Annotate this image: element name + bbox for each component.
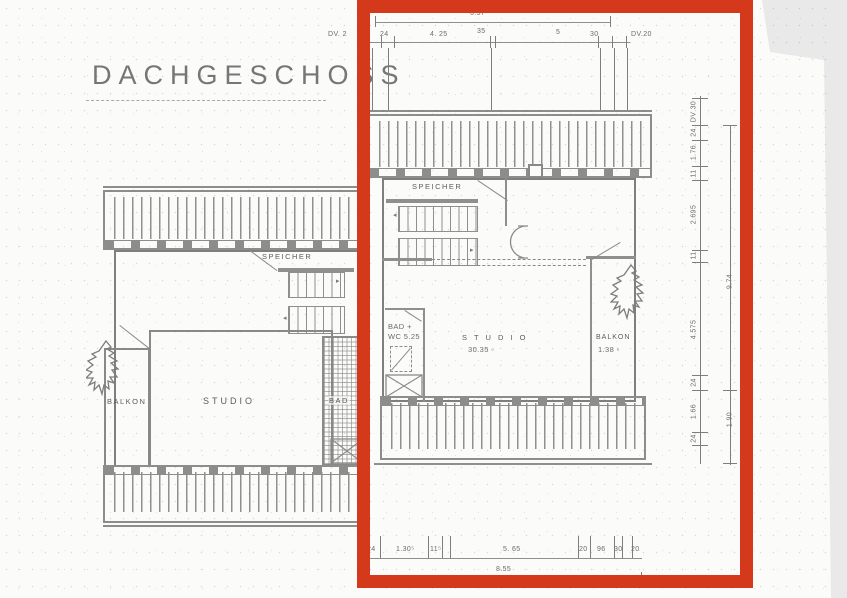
left-stairs-up-arrow-icon: ▸ bbox=[336, 278, 340, 285]
railing-posts bbox=[382, 398, 644, 406]
right-stairs-down-arrow-icon: ▸ bbox=[470, 247, 474, 254]
balcony-partition-wall bbox=[590, 258, 592, 402]
dim-tick bbox=[723, 390, 737, 391]
dim-tick bbox=[495, 36, 496, 48]
right-top-balcony-railing bbox=[368, 114, 652, 178]
left-speicher-label: SPEICHER bbox=[262, 252, 312, 261]
left-speicher-sill bbox=[278, 268, 354, 272]
railing-bottom-line bbox=[103, 525, 369, 527]
dim-seg: 5 bbox=[556, 29, 560, 36]
extension-line bbox=[372, 48, 373, 110]
dim-line bbox=[375, 22, 611, 23]
scanned-floorplan-screenshot: DACHGESCHOSS SPEICHER ▸ ◂ STUDIO BALKON … bbox=[0, 0, 847, 598]
railing-posts bbox=[370, 168, 650, 176]
door-swing-arc bbox=[496, 224, 528, 260]
dim-line bbox=[366, 558, 642, 559]
right-bad-label-2: WC 5.25 bbox=[388, 332, 420, 341]
dim-tick bbox=[394, 36, 395, 48]
railing-gate-post bbox=[528, 164, 543, 178]
dim-seg: 24 bbox=[691, 123, 698, 143]
dim-seg: DV 30 bbox=[691, 100, 698, 124]
dim-tick bbox=[641, 572, 642, 583]
dim-seg: 11 bbox=[691, 246, 698, 266]
dim-seg: 30 bbox=[614, 546, 623, 553]
dim-seg: 1.66 bbox=[691, 400, 698, 424]
tree-icon bbox=[86, 338, 126, 396]
dim-dv-right: DV.20 bbox=[631, 31, 652, 38]
dim-seg: 5. 65 bbox=[503, 546, 521, 553]
dim-seg: 2.695 bbox=[691, 201, 698, 229]
right-stairs-up-arrow-icon: ◂ bbox=[393, 212, 397, 219]
dim-seg: 11 bbox=[691, 164, 698, 184]
dim-seg: 20 bbox=[579, 546, 588, 553]
left-studio-label: STUDIO bbox=[203, 396, 255, 406]
extension-line bbox=[600, 48, 601, 110]
dim-tick bbox=[612, 36, 613, 48]
dashed-roof-line bbox=[432, 259, 586, 260]
left-fixture-icon bbox=[330, 438, 364, 464]
extension-line bbox=[428, 536, 429, 558]
bath-right-wall bbox=[423, 308, 425, 402]
dim-seg: 4.575 bbox=[691, 316, 698, 344]
dim-seg: 96 bbox=[597, 546, 606, 553]
hall-partition-wall bbox=[505, 178, 507, 226]
terrace-edge-line bbox=[374, 463, 652, 465]
dim-seg: 24 bbox=[691, 373, 698, 393]
dim-line bbox=[366, 578, 642, 579]
left-bad-label: BAD bbox=[328, 396, 350, 405]
dim-bottom-overall: 8.55 bbox=[496, 566, 511, 573]
dim-tick bbox=[375, 16, 376, 27]
railing-top-line bbox=[103, 186, 369, 188]
right-balkon-label: BALKON bbox=[596, 334, 630, 341]
dim-seg: 1.76 bbox=[691, 141, 698, 165]
dim-seg: 4. 25 bbox=[430, 31, 448, 38]
left-balkon-label: BALKON bbox=[107, 397, 146, 406]
railing-posts bbox=[105, 467, 367, 475]
page-title: DACHGESCHOSS bbox=[92, 60, 406, 91]
right-balkon-area: 1.38 ▫ bbox=[598, 345, 620, 354]
dim-dv-left: DV. 2 bbox=[328, 31, 347, 38]
dim-tick bbox=[366, 572, 367, 583]
dim-right-overall: 9.74 bbox=[727, 268, 734, 296]
dim-line bbox=[368, 42, 630, 43]
left-stairs-upper-flight bbox=[288, 272, 345, 298]
right-stairs-lower-flight bbox=[398, 238, 478, 266]
extension-line bbox=[491, 48, 492, 110]
dim-line bbox=[700, 96, 701, 464]
dim-seg: 35 bbox=[477, 28, 486, 35]
railing-top-line bbox=[368, 110, 652, 112]
right-fixture-icon bbox=[385, 374, 423, 398]
dim-tick bbox=[610, 16, 611, 27]
dim-seg: 24 bbox=[380, 31, 389, 38]
dim-seg: 30 bbox=[590, 31, 599, 38]
dim-tick bbox=[723, 463, 737, 464]
extension-line bbox=[450, 536, 451, 558]
right-speicher-sill bbox=[386, 199, 478, 203]
dim-seg: 20 bbox=[631, 546, 640, 553]
dim-tick bbox=[723, 125, 737, 126]
title-underline bbox=[86, 100, 326, 101]
extension-line bbox=[442, 536, 443, 558]
dashed-roof-line bbox=[432, 265, 586, 266]
dim-seg: 24 bbox=[367, 546, 376, 553]
right-stairs-upper-flight bbox=[398, 206, 478, 232]
left-bottom-balcony-railing bbox=[103, 465, 369, 523]
left-top-balcony-railing bbox=[103, 190, 369, 250]
railing-posts bbox=[105, 240, 367, 248]
right-studio-area: 30.35 ▫ bbox=[468, 345, 494, 354]
right-speicher-label: SPEICHER bbox=[412, 182, 462, 191]
dim-right-lower: 1.90 bbox=[727, 406, 734, 434]
right-bottom-balcony-railing bbox=[380, 396, 646, 460]
extension-line bbox=[614, 48, 615, 110]
dim-top-overall: 6.57 bbox=[470, 10, 485, 17]
extension-line bbox=[388, 48, 389, 110]
partition-wall bbox=[382, 258, 432, 261]
extension-line bbox=[590, 536, 591, 558]
left-stairs-down-arrow-icon: ◂ bbox=[283, 315, 287, 322]
right-studio-label: S T U D I O bbox=[462, 333, 528, 342]
extension-line bbox=[380, 536, 381, 558]
extension-line bbox=[627, 48, 628, 110]
dim-seg: 1.30⁵ bbox=[396, 546, 415, 553]
right-bad-label-1: BAD + bbox=[388, 322, 412, 331]
dim-tick bbox=[490, 36, 491, 48]
dim-tick bbox=[368, 36, 369, 48]
dim-seg: 24 bbox=[691, 429, 698, 449]
dim-seg: 11⁵ bbox=[430, 546, 441, 553]
dim-tick bbox=[626, 36, 627, 48]
tree-icon bbox=[610, 262, 652, 320]
